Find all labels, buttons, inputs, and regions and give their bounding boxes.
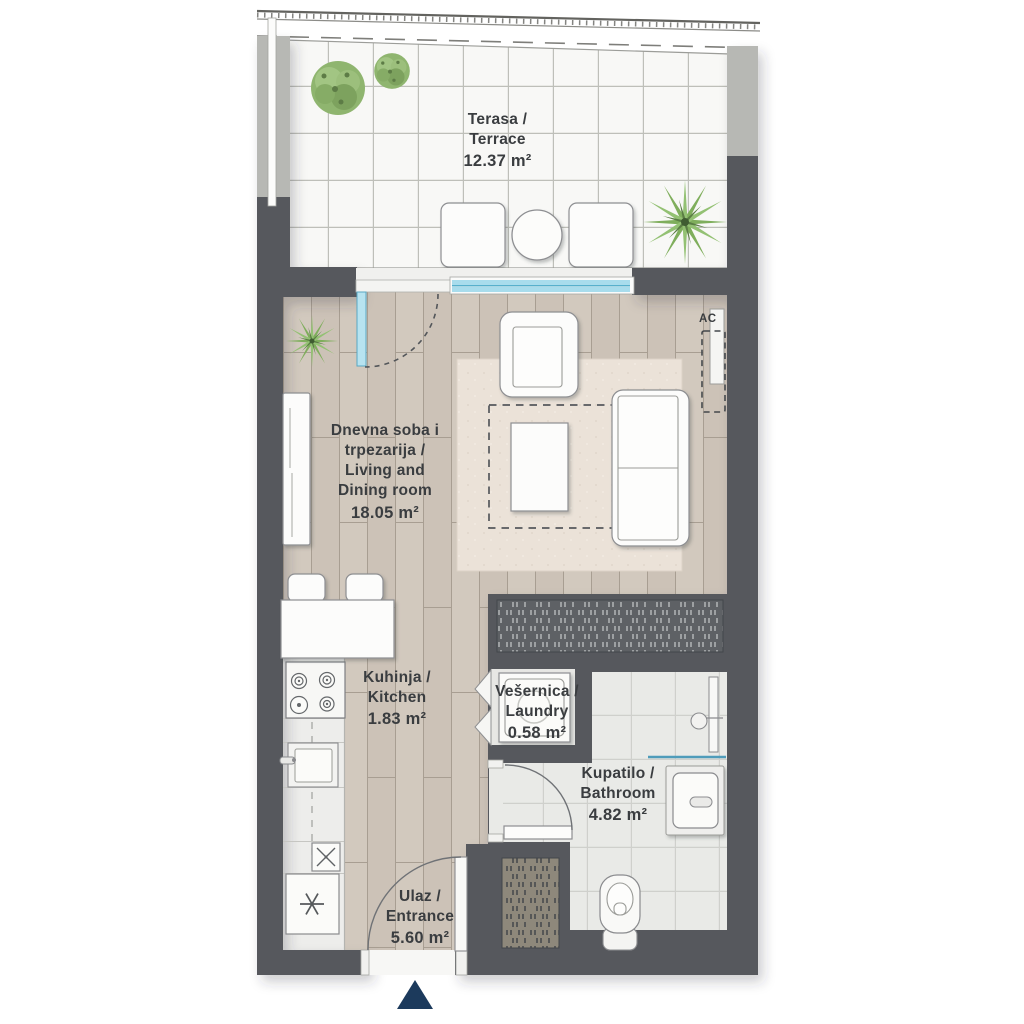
floor-plan-canvas (0, 0, 1024, 1024)
wall-segment (727, 156, 758, 268)
sofa (612, 390, 689, 546)
wall-segment (257, 950, 369, 975)
entrance-opening (369, 950, 455, 975)
pier-wall (727, 46, 758, 156)
wall-segment (632, 268, 758, 295)
small-appliance-icon (312, 843, 340, 871)
terrace-table (512, 210, 562, 260)
shaft-hatch (502, 858, 559, 948)
bathroom-doorway (489, 763, 503, 842)
railing-post (268, 18, 276, 206)
terrace-stool (569, 203, 633, 267)
sink-icon (280, 743, 338, 787)
entrance-arrow-icon (397, 980, 433, 1009)
bush-plant-icon (311, 61, 365, 115)
wall-segment (257, 297, 283, 975)
ac-unit-label: AC (699, 313, 729, 325)
door-threshold (356, 280, 460, 292)
armchair (500, 312, 578, 397)
shaft-hatch (497, 600, 723, 652)
tv-cabinet (283, 393, 310, 545)
door-jamb (456, 950, 467, 975)
wall-segment (257, 197, 290, 267)
coffee-table (511, 423, 568, 511)
dining-table (281, 600, 394, 658)
floor-plan: Terasa / Terrace 12.37 m² Dnevna soba i … (0, 0, 1024, 1024)
wall-segment (257, 267, 357, 297)
toilet-icon (600, 875, 640, 950)
freezer-icon (286, 874, 339, 934)
balcony-door-leaf (357, 292, 366, 366)
stove-icon (286, 662, 345, 718)
terrace-stool (441, 203, 505, 267)
washing-machine-icon (499, 673, 570, 742)
wall-segment (466, 844, 490, 952)
door-jamb (488, 834, 503, 842)
vanity-sink-icon (666, 766, 724, 835)
door-jamb (488, 760, 503, 768)
door-jamb (361, 950, 369, 975)
dining-stool (346, 574, 383, 602)
bush-plant-icon (374, 53, 410, 89)
sliding-window (450, 277, 634, 294)
entrance-door-leaf (455, 857, 467, 951)
dining-stool (288, 574, 325, 602)
bathroom-door-leaf (504, 826, 572, 839)
